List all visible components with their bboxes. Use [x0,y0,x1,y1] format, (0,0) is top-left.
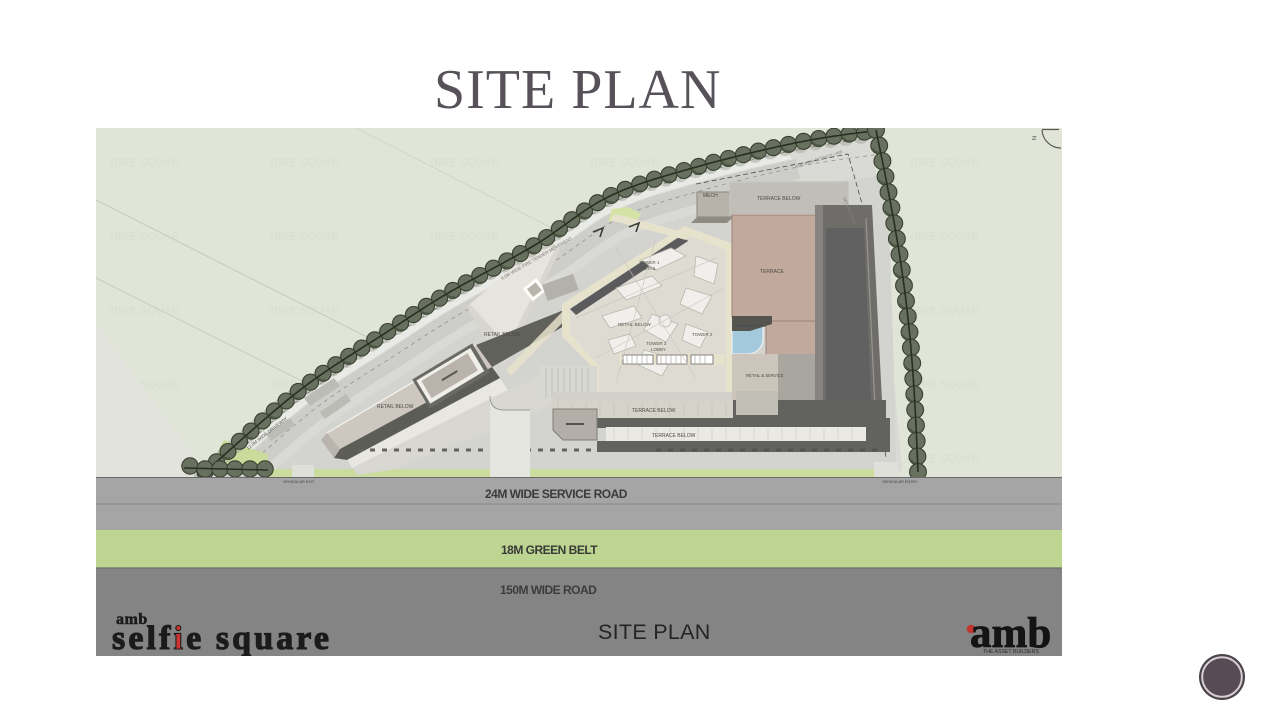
svg-text:⟨BRE SQU®E: ⟨BRE SQU®E [430,157,499,169]
svg-text:RETAIL BELOW: RETAIL BELOW [484,332,521,338]
svg-text:VEHICULAR EXIT: VEHICULAR EXIT [283,480,315,484]
svg-text:⟨BRE SQU®E: ⟨BRE SQU®E [270,305,339,317]
svg-text:RETAIL BELOW: RETAIL BELOW [618,322,652,327]
svg-text:24M WIDE SERVICE ROAD: 24M WIDE SERVICE ROAD [485,487,628,501]
svg-text:TOWER 1: TOWER 1 [639,260,660,265]
svg-text:⟨BRE SQU®E: ⟨BRE SQU®E [910,305,979,317]
svg-text:RETAIL & SERVICE: RETAIL & SERVICE [746,373,784,378]
svg-text:RETAIL BELOW: RETAIL BELOW [377,404,414,410]
svg-text:selfie square: selfie square [112,620,332,656]
svg-text:TERRACE BELOW: TERRACE BELOW [652,433,696,439]
svg-text:⟨BRE SQU®E: ⟨BRE SQU®E [110,305,179,317]
svg-text:⟨BRE SQU®E: ⟨BRE SQU®E [270,157,339,169]
svg-text:⟨BRE SQU®E: ⟨BRE SQU®E [270,231,339,243]
svg-text:TERRACE: TERRACE [760,269,785,275]
svg-text:TERRACE BELOW: TERRACE BELOW [632,408,676,414]
svg-text:N: N [1030,136,1036,141]
svg-text:MECH: MECH [703,193,718,199]
svg-text:18M GREEN BELT: 18M GREEN BELT [501,543,598,557]
svg-text:SITE PLAN: SITE PLAN [598,620,711,644]
svg-text:150M WIDE ROAD: 150M WIDE ROAD [500,583,597,597]
svg-text:⟨BRE SQU®E: ⟨BRE SQU®E [910,231,979,243]
svg-text:TOWER 3: TOWER 3 [646,341,667,346]
svg-text:VEHICULAR ENTRY: VEHICULAR ENTRY [882,480,918,484]
svg-text:⟨BRE SQU®E: ⟨BRE SQU®E [430,231,499,243]
svg-text:TOWER 2: TOWER 2 [692,332,713,337]
svg-text:TERRACE BELOW: TERRACE BELOW [757,196,801,202]
svg-text:RETAIL: RETAIL [641,266,657,271]
svg-text:⟨BRE SQU®E: ⟨BRE SQU®E [910,157,979,169]
svg-text:LOBBY: LOBBY [651,347,666,352]
svg-text:⟨BRE SQU®E: ⟨BRE SQU®E [590,157,659,169]
svg-text:THE ASSET BUILDERS: THE ASSET BUILDERS [983,649,1039,655]
svg-text:SWIMMING POOL: SWIMMING POOL [736,324,766,328]
svg-text:⟨BRE SQU®E: ⟨BRE SQU®E [110,157,179,169]
